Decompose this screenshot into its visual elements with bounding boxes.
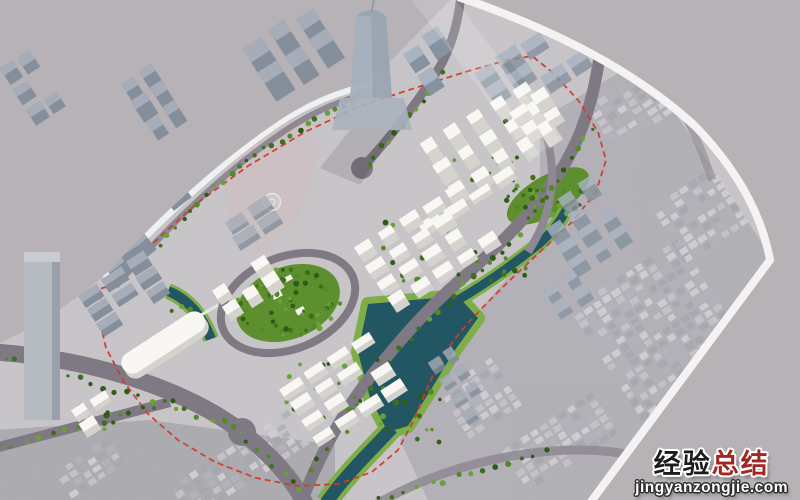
tall-slab-building — [24, 252, 60, 420]
watermark: 经验总结 jingyanzongjie.com — [635, 451, 788, 496]
south-intersection — [228, 418, 256, 446]
watermark-title-black: 经验 — [654, 449, 712, 479]
watermark-title-red: 总结 — [712, 449, 770, 479]
masterplan-render — [0, 0, 800, 500]
watermark-title: 经验总结 — [635, 451, 788, 478]
watermark-domain: jingyanzongjie.com — [635, 480, 788, 496]
masterplan-image: 经验总结 jingyanzongjie.com — [0, 0, 800, 500]
